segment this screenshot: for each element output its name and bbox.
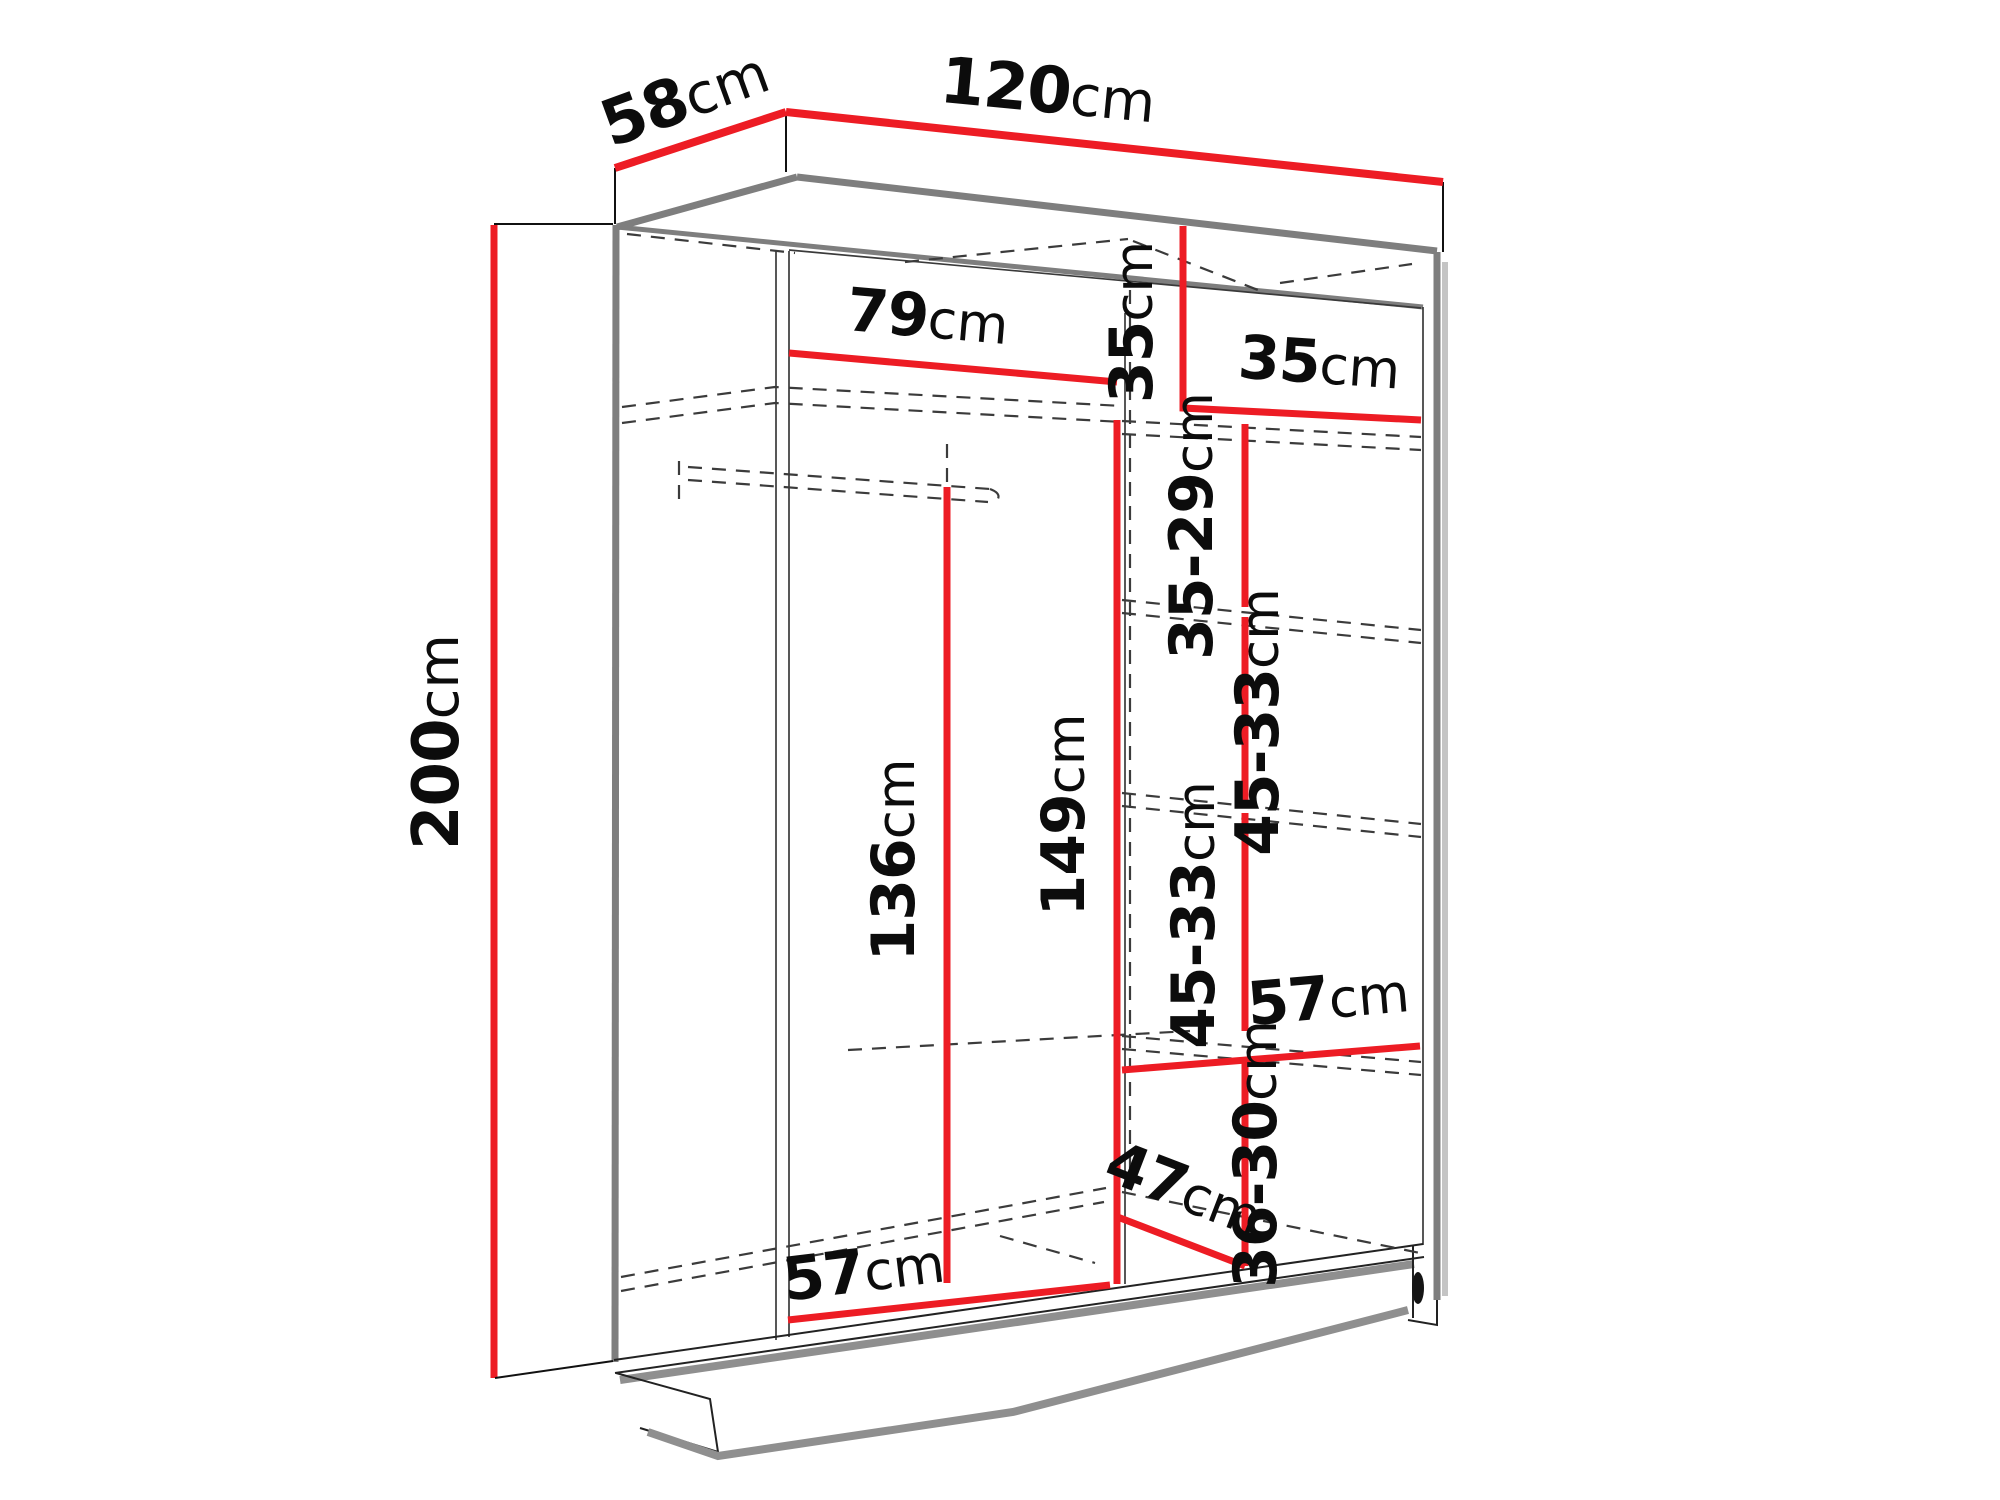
- bottom-front-edge-upper: [614, 1244, 1423, 1360]
- label-79-unit: cm: [925, 289, 1011, 357]
- label-35v-value: 35: [1097, 322, 1167, 404]
- wardrobe-structure: [614, 112, 1445, 1456]
- label-45-33b-unit: cm: [1166, 781, 1227, 862]
- hanging-rail-bottom: [688, 480, 988, 502]
- label-45-33cm-lower: 45-33cm: [1159, 781, 1229, 1049]
- label-136-value: 136: [859, 839, 929, 961]
- front-top-edge: [617, 227, 1423, 307]
- label-57r-value: 57: [1244, 963, 1331, 1040]
- top-left-depth-edge: [617, 177, 797, 227]
- crown-bottom-front-edge: [797, 177, 1437, 251]
- hidden-top-right: [1280, 264, 1412, 283]
- label-35h-value: 35: [1236, 322, 1322, 398]
- bottom-depth-dash: [1000, 1236, 1095, 1263]
- front-left-edge: [615, 225, 616, 1362]
- label-136cm: 136cm: [859, 758, 929, 961]
- label-149-value: 149: [1029, 794, 1099, 916]
- label-149-unit: cm: [1036, 713, 1097, 794]
- label-45-33a-unit: cm: [1230, 588, 1291, 669]
- label-35h-unit: cm: [1317, 335, 1402, 401]
- plinth-front-shadow: [620, 1264, 1414, 1380]
- label-57cm-right: 57cm: [1244, 956, 1412, 1040]
- label-35cm-vertical: 35cm: [1097, 241, 1167, 403]
- label-height-200cm: 200cm: [400, 634, 474, 850]
- top-shelf-left-lower: [622, 403, 1122, 423]
- label-57b-value: 57: [779, 1236, 868, 1315]
- label-57b-unit: cm: [861, 1233, 949, 1303]
- label-35-29cm: 35-29cm: [1157, 392, 1227, 660]
- dimension-line-79: [789, 353, 1117, 382]
- label-35-29-unit: cm: [1164, 392, 1225, 473]
- right-foot-cap: [1412, 1272, 1424, 1304]
- witness-line-height-bottom: [495, 1361, 613, 1378]
- label-35-29-value: 35-29: [1157, 473, 1227, 660]
- dimension-labels: 58cm 120cm 200cm 79cm 35cm 35cm 35-29cm …: [400, 34, 1412, 1316]
- label-45-33b-value: 45-33: [1159, 862, 1229, 1049]
- wardrobe-dimension-diagram: 58cm 120cm 200cm 79cm 35cm 35cm 35-29cm …: [0, 0, 2000, 1500]
- floor-shadow: [648, 1310, 1408, 1456]
- label-height-value: 200: [400, 719, 474, 850]
- label-36-30cm: 36-30cm: [1221, 1020, 1291, 1288]
- top-shelf-left-upper: [622, 387, 1122, 407]
- label-57r-unit: cm: [1326, 963, 1412, 1031]
- hidden-top-middle-rise: [905, 239, 1128, 262]
- label-79-value: 79: [844, 275, 931, 352]
- hanging-rail-top: [688, 467, 990, 489]
- label-35cm-horizontal: 35cm: [1236, 322, 1403, 403]
- label-45-33a-value: 45-33: [1223, 669, 1293, 856]
- label-45-33cm-upper: 45-33cm: [1223, 588, 1293, 856]
- label-width-unit: cm: [1067, 63, 1158, 136]
- label-width-120cm: 120cm: [937, 44, 1159, 138]
- shelf4-back-edge: [848, 1031, 1190, 1050]
- label-width-value: 120: [937, 44, 1074, 130]
- hanging-rail-right-cap: [990, 489, 999, 505]
- bottom-front-edge-lower: [615, 1257, 1424, 1373]
- label-79cm: 79cm: [844, 275, 1012, 359]
- label-149cm: 149cm: [1029, 713, 1099, 916]
- label-136-unit: cm: [866, 758, 927, 839]
- diagram-canvas: 58cm 120cm 200cm 79cm 35cm 35cm 35-29cm …: [0, 0, 2000, 1500]
- label-35v-unit: cm: [1104, 241, 1165, 322]
- label-height-unit: cm: [407, 634, 472, 719]
